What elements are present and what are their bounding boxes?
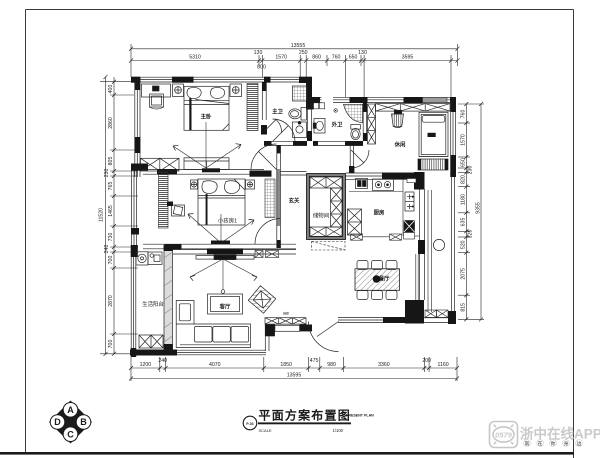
svg-text:650: 650 — [461, 158, 467, 167]
svg-text:5310: 5310 — [189, 55, 201, 61]
svg-text:250: 250 — [299, 50, 308, 56]
svg-text:130: 130 — [254, 50, 263, 56]
svg-text:230: 230 — [104, 169, 110, 178]
svg-text:730: 730 — [108, 233, 114, 242]
svg-text:815: 815 — [461, 303, 467, 312]
svg-text:浙中在线APP: 浙中在线APP — [520, 426, 600, 442]
svg-text:2075: 2075 — [461, 268, 467, 280]
svg-text:635: 635 — [461, 218, 467, 227]
svg-text:760: 760 — [332, 55, 341, 61]
svg-text:320: 320 — [468, 230, 474, 239]
svg-text:805: 805 — [108, 157, 114, 166]
svg-text:860: 860 — [312, 55, 321, 61]
svg-text:厨房: 厨房 — [374, 209, 385, 217]
svg-text:11520: 11520 — [99, 208, 105, 222]
svg-text:3595: 3595 — [402, 55, 414, 61]
svg-text:SCALE: SCALE — [259, 428, 272, 433]
svg-text:800: 800 — [257, 65, 266, 71]
svg-text:200: 200 — [422, 358, 431, 364]
svg-text:你: 你 — [551, 440, 556, 446]
svg-text:边: 边 — [577, 440, 582, 447]
svg-text:2870: 2870 — [108, 295, 114, 307]
svg-text:240: 240 — [158, 358, 167, 364]
svg-text:D: D — [54, 417, 61, 427]
svg-text:13555: 13555 — [291, 43, 306, 49]
svg-text:980: 980 — [327, 362, 336, 368]
svg-text:身: 身 — [564, 440, 569, 447]
svg-text:1570: 1570 — [275, 55, 287, 61]
svg-text:客厅: 客厅 — [220, 303, 231, 311]
svg-text:1160: 1160 — [438, 362, 449, 368]
svg-text:玄关: 玄关 — [289, 197, 300, 205]
svg-text:主卧: 主卧 — [201, 113, 212, 121]
svg-text:1/100: 1/100 — [333, 428, 344, 433]
svg-text:外卫: 外卫 — [332, 121, 343, 129]
svg-text:1180: 1180 — [461, 194, 467, 205]
svg-text:13595: 13595 — [287, 373, 302, 379]
svg-text:3360: 3360 — [378, 362, 390, 368]
svg-text:820: 820 — [461, 175, 467, 184]
svg-text:230: 230 — [468, 166, 474, 175]
svg-text:4070: 4070 — [209, 362, 221, 368]
svg-text:9355: 9355 — [476, 202, 482, 214]
svg-text:在: 在 — [538, 440, 543, 446]
svg-text:1570: 1570 — [461, 134, 467, 146]
svg-text:130: 130 — [358, 50, 367, 56]
svg-text:C: C — [67, 429, 74, 439]
svg-text:休闲: 休闲 — [394, 141, 406, 149]
svg-text:240: 240 — [104, 245, 110, 254]
svg-text:生活阳台: 生活阳台 — [142, 300, 164, 308]
svg-text:1465: 1465 — [108, 205, 114, 217]
svg-text:P-03: P-03 — [246, 422, 253, 426]
svg-text:475: 475 — [310, 358, 319, 364]
svg-text:B: B — [80, 417, 87, 427]
svg-text:平面方案布置图: 平面方案布置图 — [259, 408, 351, 423]
svg-text:PRESENT PLAN: PRESENT PLAN — [346, 414, 374, 418]
svg-text:700: 700 — [108, 256, 114, 265]
svg-text:0579: 0579 — [495, 431, 513, 440]
svg-text:1200: 1200 — [140, 362, 152, 368]
svg-text:765: 765 — [108, 182, 114, 191]
svg-text:760: 760 — [461, 110, 467, 119]
svg-text:2860: 2860 — [108, 117, 114, 129]
svg-text:400: 400 — [108, 85, 114, 94]
svg-text:1850: 1850 — [280, 362, 292, 368]
svg-text:520: 520 — [461, 240, 467, 249]
svg-text:储物间: 储物间 — [313, 212, 329, 220]
svg-text:650: 650 — [349, 55, 358, 61]
svg-text:主卫: 主卫 — [272, 108, 283, 116]
svg-text:就: 就 — [525, 440, 530, 447]
svg-text:鞋柜: 鞋柜 — [283, 311, 289, 316]
svg-text:700: 700 — [108, 340, 114, 349]
svg-text:A: A — [67, 405, 74, 415]
